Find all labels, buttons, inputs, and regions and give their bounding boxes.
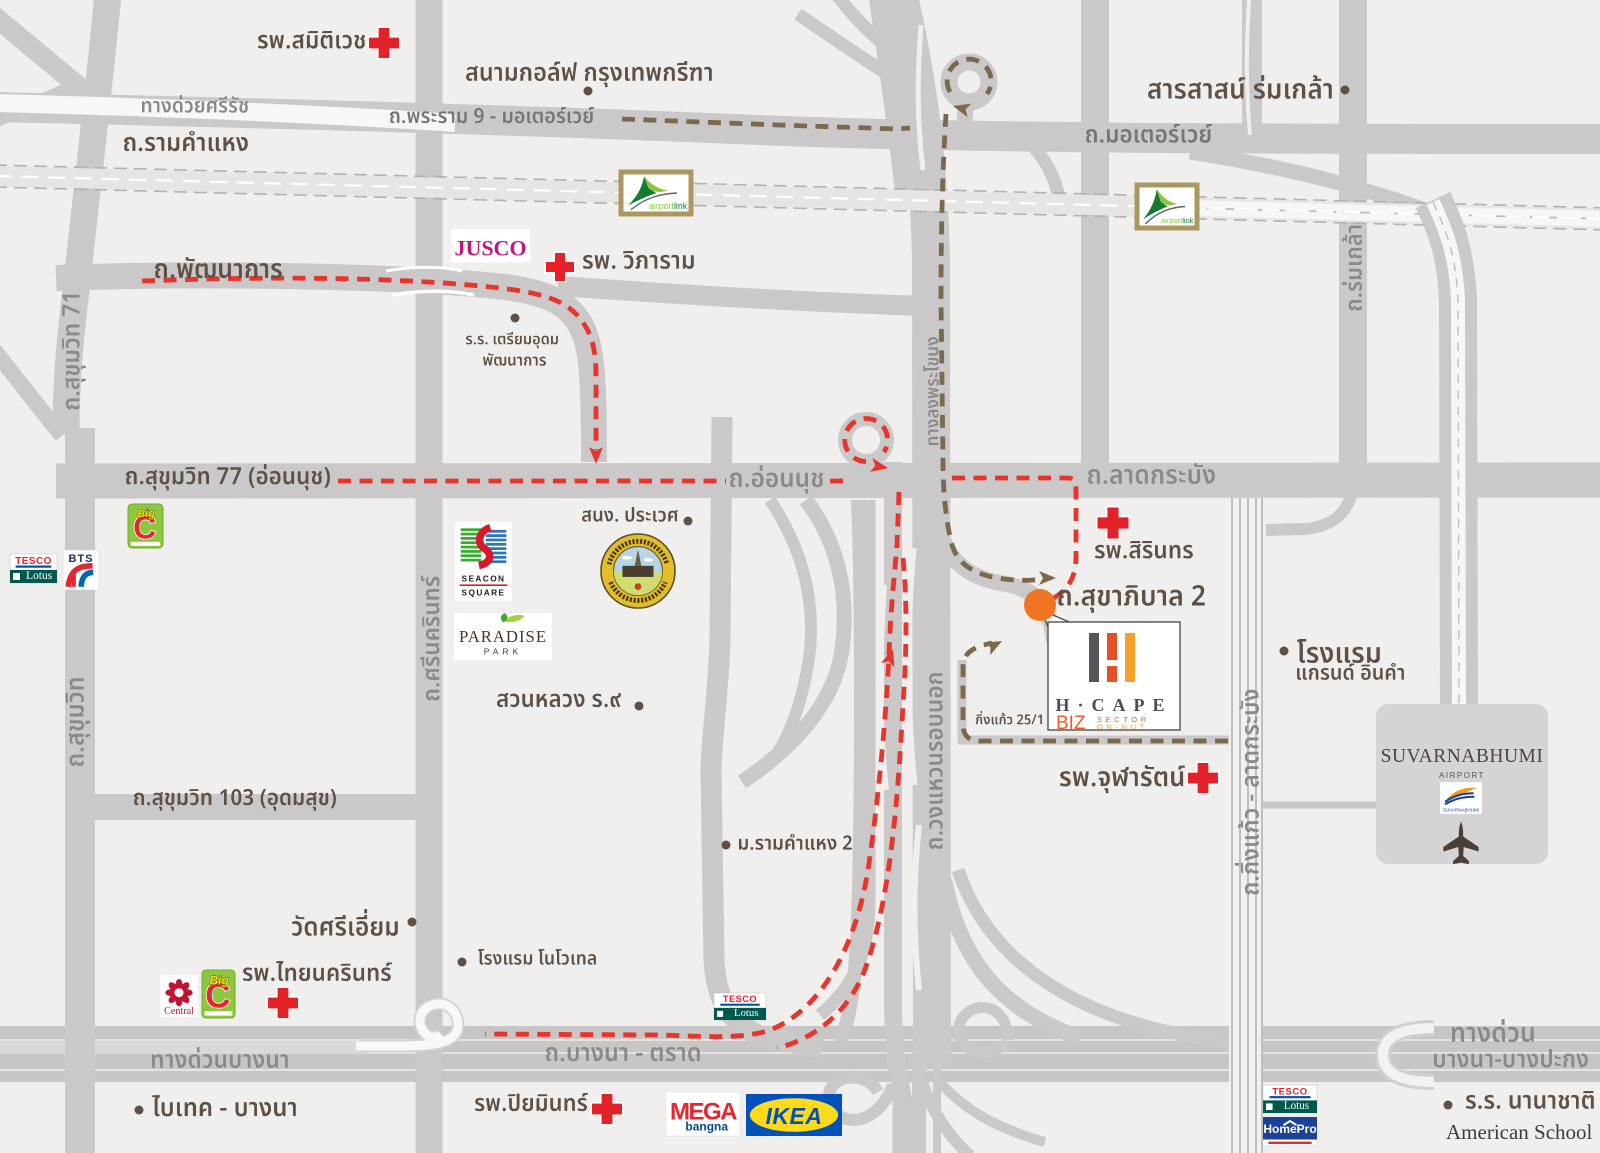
- svg-text:Big: Big: [137, 508, 155, 520]
- svg-text:TESCO: TESCO: [15, 556, 52, 567]
- svg-text:bangna: bangna: [685, 1120, 728, 1134]
- svg-text:Central: Central: [164, 1006, 194, 1017]
- svg-text:H·CAPE: H·CAPE: [1055, 695, 1172, 715]
- svg-text:Lotus: Lotus: [1284, 1100, 1309, 1112]
- svg-text:JUSCO: JUSCO: [454, 235, 526, 260]
- svg-text:airportlink: airportlink: [649, 201, 688, 211]
- svg-text:Lotus: Lotus: [26, 570, 53, 582]
- svg-text:TESCO: TESCO: [1272, 1087, 1307, 1098]
- svg-text:PARK: PARK: [484, 646, 523, 656]
- svg-text:IKEA: IKEA: [766, 1103, 823, 1129]
- svg-text:SQUARE: SQUARE: [462, 587, 506, 597]
- svg-text:BIZ: BIZ: [1056, 713, 1086, 734]
- svg-text:SEACON: SEACON: [462, 573, 506, 583]
- svg-text:Lotus: Lotus: [734, 1007, 758, 1019]
- svg-text:PARADISE: PARADISE: [459, 627, 547, 646]
- svg-text:airportlink: airportlink: [1161, 216, 1194, 225]
- svg-text:HomePro: HomePro: [1263, 1122, 1316, 1136]
- svg-text:SUVARNABHUMI: SUVARNABHUMI: [1443, 807, 1479, 812]
- svg-text:Big: Big: [209, 973, 229, 987]
- svg-text:SUVARNABHUMI: SUVARNABHUMI: [1381, 746, 1544, 767]
- svg-text:American School: American School: [1446, 1120, 1593, 1144]
- svg-text:TESCO: TESCO: [723, 994, 757, 1004]
- svg-text:ON-NUT: ON-NUT: [1097, 723, 1148, 732]
- svg-text:AIRPORT: AIRPORT: [1439, 771, 1485, 780]
